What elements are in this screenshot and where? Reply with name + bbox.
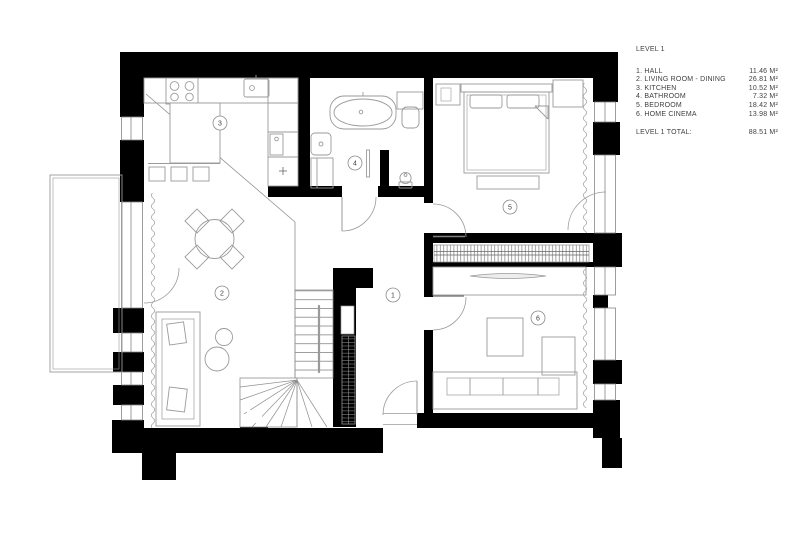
wall-right-pier-2 bbox=[593, 233, 622, 267]
door-cinema bbox=[433, 296, 466, 330]
wash-basin bbox=[311, 133, 331, 155]
bar-stools bbox=[149, 167, 209, 181]
legend-total-row: LEVEL 1 TOTAL: 88.51 M² bbox=[636, 129, 778, 138]
floor-plan-page: 1 2 3 4 5 6 LEVEL 1 bbox=[0, 0, 800, 533]
pillow bbox=[470, 95, 502, 108]
wall-wardrobe-divider bbox=[433, 262, 593, 267]
legend-row-kitchen: 3. KITCHEN 10.52 M² bbox=[636, 85, 778, 94]
wall-stair-cap bbox=[333, 268, 373, 288]
legend-row-hall: 1. HALL 11.46 M² bbox=[636, 68, 778, 77]
window-left-1 bbox=[122, 117, 143, 140]
bed-bench bbox=[477, 176, 539, 189]
radiator bbox=[342, 336, 355, 424]
legend-row-bathroom: 4. BATHROOM 7.32 M² bbox=[636, 93, 778, 102]
room-area: 13.98 M² bbox=[749, 111, 778, 120]
wall-hall-lower bbox=[424, 330, 433, 428]
laundry-basket bbox=[402, 107, 419, 128]
room-marker-living: 2 bbox=[215, 286, 229, 300]
pouf-large bbox=[205, 347, 229, 371]
stove bbox=[166, 78, 198, 104]
window-left-4 bbox=[122, 372, 143, 385]
bath-cabinet bbox=[311, 158, 333, 188]
legend-row-bedroom: 5. BEDROOM 18.42 M² bbox=[636, 102, 778, 111]
wall-bottom-foot bbox=[142, 453, 176, 480]
door-balcony bbox=[144, 268, 179, 303]
legend-row-cinema: 6. HOME CINEMA 13.98 M² bbox=[636, 111, 778, 120]
wall-bottom-right bbox=[417, 413, 593, 428]
pillow bbox=[507, 95, 539, 108]
bedside-table-right bbox=[553, 80, 583, 107]
room-area: 26.81 M² bbox=[749, 76, 778, 85]
tub-drain bbox=[359, 110, 363, 114]
window-right-3 bbox=[595, 267, 616, 295]
wall-left-pier-4 bbox=[113, 385, 144, 405]
curtain-living bbox=[150, 193, 156, 428]
room-area: 7.32 M² bbox=[753, 93, 778, 102]
balcony bbox=[50, 175, 122, 372]
hanger-zone bbox=[434, 245, 589, 262]
wardrobe bbox=[433, 245, 589, 295]
ceiling-slope-diagonal bbox=[146, 94, 295, 222]
legend-row-living: 2. LIVING ROOM - DINING 26.81 M² bbox=[636, 76, 778, 85]
wall-toilet-partition bbox=[380, 150, 389, 190]
window-right-5 bbox=[595, 384, 616, 400]
wall-right-corner bbox=[593, 400, 620, 438]
legend: LEVEL 1 1. HALL 11.46 M² 2. LIVING ROOM … bbox=[636, 46, 778, 138]
wall-kitchen-bath bbox=[298, 78, 310, 197]
chimney-inner bbox=[247, 410, 262, 423]
door-bathroom bbox=[342, 197, 376, 231]
window-right-1 bbox=[595, 102, 616, 122]
washer bbox=[397, 92, 423, 109]
doors bbox=[144, 192, 606, 427]
door-bedroom bbox=[433, 204, 466, 237]
nightstand-left bbox=[436, 84, 460, 105]
bathroom bbox=[311, 92, 423, 188]
kitchen-counter bbox=[144, 78, 298, 103]
pouf-small bbox=[216, 329, 233, 346]
svg-text:2: 2 bbox=[220, 291, 224, 298]
wall-left-pier-1 bbox=[120, 140, 144, 202]
home-cinema bbox=[433, 318, 577, 409]
chaise bbox=[542, 337, 575, 375]
cinema-sofa bbox=[433, 372, 577, 409]
svg-text:1: 1 bbox=[391, 293, 395, 300]
room-marker-bathroom: 4 bbox=[348, 156, 362, 170]
wall-left-top bbox=[120, 52, 144, 117]
svg-text:4: 4 bbox=[353, 161, 357, 168]
svg-text:5: 5 bbox=[508, 205, 512, 212]
living-room bbox=[156, 209, 244, 426]
legend-title: LEVEL 1 bbox=[636, 46, 778, 55]
room-area: 10.52 M² bbox=[749, 85, 778, 94]
room-marker-cinema: 6 bbox=[531, 311, 545, 325]
toilet bbox=[399, 172, 412, 188]
room-area: 18.42 M² bbox=[749, 102, 778, 111]
ottoman-table bbox=[487, 318, 523, 356]
curtain-cinema bbox=[582, 267, 588, 408]
kitchen-island bbox=[170, 103, 220, 163]
stair-flight bbox=[295, 290, 333, 378]
room-label: 3. KITCHEN bbox=[636, 85, 677, 94]
kitchen-tall-unit bbox=[268, 78, 298, 186]
tv-shelf bbox=[433, 267, 586, 295]
room-label: 2. LIVING ROOM - DINING bbox=[636, 76, 726, 85]
room-label: 1. HALL bbox=[636, 68, 663, 77]
wall-right-top bbox=[593, 52, 618, 102]
bathtub bbox=[330, 92, 396, 129]
window-left-5 bbox=[122, 405, 143, 420]
sofa-pillow bbox=[167, 387, 188, 412]
wall-bedroom-bottom bbox=[424, 233, 593, 243]
drain-cross bbox=[279, 167, 287, 175]
room-marker-kitchen: 3 bbox=[213, 116, 227, 130]
wall-hall-bedroom bbox=[424, 78, 433, 203]
bedroom bbox=[436, 80, 583, 189]
total-label: LEVEL 1 TOTAL: bbox=[636, 129, 692, 138]
bed bbox=[464, 92, 549, 173]
svg-text:6: 6 bbox=[536, 316, 540, 323]
wall-left-pier-2 bbox=[113, 308, 144, 333]
stair-niche bbox=[341, 306, 354, 334]
sofa-pillow bbox=[167, 322, 187, 345]
door-entrance bbox=[383, 381, 417, 427]
room-marker-bedroom: 5 bbox=[503, 200, 517, 214]
kitchen bbox=[144, 75, 298, 186]
window-left-3 bbox=[122, 333, 143, 352]
dining-chairs bbox=[185, 209, 244, 269]
room-label: 6. HOME CINEMA bbox=[636, 111, 697, 120]
room-label: 5. BEDROOM bbox=[636, 102, 682, 111]
wall-hall-mid bbox=[424, 243, 433, 297]
room-label: 4. BATHROOM bbox=[636, 93, 686, 102]
wall-right-pier-1 bbox=[593, 122, 620, 155]
window-right-2 bbox=[595, 155, 616, 233]
wall-right-pier-small bbox=[593, 295, 608, 308]
room-marker-hall: 1 bbox=[386, 288, 400, 302]
wall-right-pier-3 bbox=[593, 360, 622, 384]
room-area: 11.46 M² bbox=[749, 68, 778, 77]
window-left-2 bbox=[122, 202, 143, 308]
wall-right-foot bbox=[602, 438, 622, 468]
curtain-bedroom bbox=[582, 83, 588, 233]
wall-bottom-left bbox=[112, 428, 383, 453]
svg-text:3: 3 bbox=[218, 121, 222, 128]
headboard bbox=[461, 84, 552, 92]
dining-table bbox=[195, 220, 234, 259]
total-area: 88.51 M² bbox=[749, 129, 778, 138]
window-right-4 bbox=[595, 308, 616, 360]
living-sofa bbox=[156, 312, 200, 426]
glass-partition bbox=[367, 150, 370, 177]
wall-top bbox=[120, 52, 597, 78]
